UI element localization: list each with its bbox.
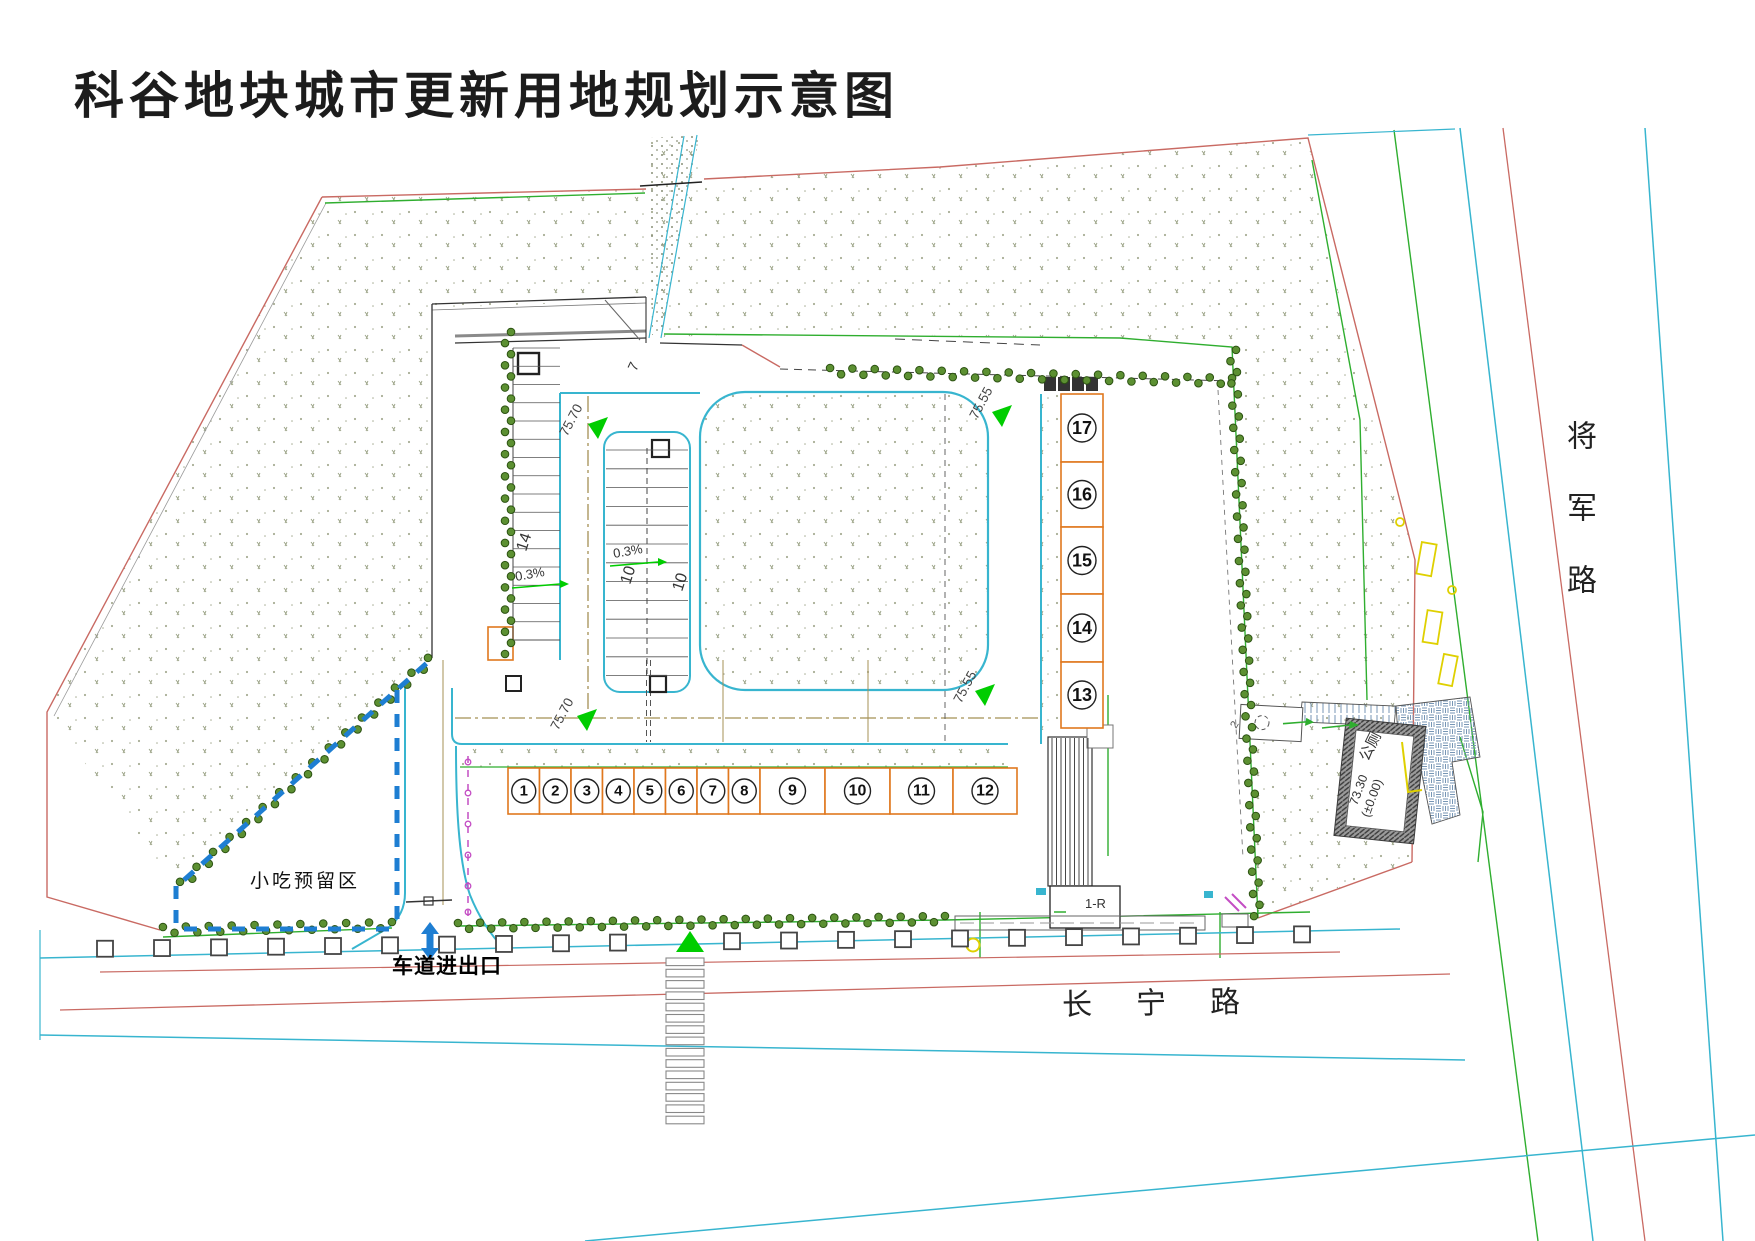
- ramp-count-label: 7: [624, 359, 642, 373]
- shop-unit-row: 9: [760, 768, 825, 814]
- svg-text:9: 9: [788, 783, 797, 800]
- driveway-gate: [406, 897, 452, 905]
- column-marker: [652, 440, 669, 457]
- svg-text:7: 7: [709, 783, 717, 800]
- elevation-triangle: [975, 684, 995, 706]
- shop-unit-column: 16: [1061, 462, 1103, 527]
- south-road-far-curb: [585, 1135, 1755, 1241]
- svg-text:13: 13: [1072, 685, 1092, 705]
- shop-unit-row: 5: [634, 768, 666, 814]
- svg-text:4: 4: [614, 783, 623, 800]
- stall-count: 10: [618, 564, 640, 586]
- plan-drawing: 12345678910111217161514131-R7公厕73.30(±0.…: [0, 0, 1755, 1241]
- svg-text:17: 17: [1072, 418, 1092, 438]
- corner-connector: [1308, 129, 1455, 135]
- page-title: 科谷地块城市更新用地规划示意图: [74, 56, 899, 128]
- column-marker: [518, 353, 539, 374]
- hedge-top-band: [826, 364, 1236, 387]
- shop-unit-row: 10: [825, 768, 890, 814]
- svg-text:16: 16: [1072, 485, 1092, 505]
- south-road-south-curb: [40, 1035, 1465, 1060]
- shop-unit-row: 4: [603, 768, 635, 814]
- parking-stalls: [513, 348, 688, 676]
- svg-text:15: 15: [1072, 551, 1092, 571]
- shop-row-sidewalk: [460, 745, 1008, 768]
- east-road-centerline: [1503, 128, 1645, 1241]
- road-label-changning: 长宁路: [1062, 976, 1285, 1024]
- stall-count: 14: [514, 531, 536, 553]
- east-road-east-curb: [1645, 128, 1723, 1241]
- elevation-triangle: [577, 709, 597, 731]
- east-road-west-curb: [1460, 128, 1593, 1241]
- street-tree-squares: [97, 926, 1310, 956]
- shop-unit-row: 12: [953, 768, 1017, 814]
- svg-text:8: 8: [740, 783, 748, 800]
- elevation-triangle: [588, 417, 608, 439]
- site-plan-canvas: 12345678910111217161514131-R7公厕73.30(±0.…: [0, 0, 1755, 1241]
- svg-text:11: 11: [913, 783, 930, 800]
- stipple-left-wedge: [47, 197, 432, 888]
- shop-unit-column: 17: [1061, 394, 1103, 462]
- svg-text:12: 12: [976, 783, 994, 800]
- shop-unit-column: 14: [1061, 594, 1103, 662]
- svg-text:14: 14: [1072, 618, 1092, 638]
- building-1r-label: 1-R: [1085, 896, 1106, 911]
- snack-area-label: 小吃预留区: [250, 866, 360, 893]
- svg-text:1: 1: [520, 783, 528, 800]
- svg-text:2: 2: [551, 783, 559, 800]
- east-road-green-edge: [1394, 130, 1538, 1241]
- shop-unit-row: 7: [697, 768, 729, 814]
- stall-count: 10: [670, 571, 692, 593]
- column-marker: [650, 676, 666, 692]
- south-road-edge-line: [100, 952, 1340, 972]
- svg-text:3: 3: [583, 783, 591, 800]
- shop-unit-column: 13: [1061, 662, 1103, 728]
- svg-text:6: 6: [677, 783, 685, 800]
- elevation-triangle: [992, 405, 1012, 427]
- svg-text:5: 5: [646, 783, 654, 800]
- crosswalk-triangle: [676, 931, 704, 952]
- road-label-jiangjun: 将军路: [1556, 420, 1600, 636]
- hedge-street-east: [454, 912, 949, 932]
- column-sidewalk-strip: [1042, 394, 1061, 730]
- shop-unit-row: 8: [729, 768, 761, 814]
- elevation-label: 75.70: [547, 696, 576, 733]
- shop-unit-row: 3: [571, 768, 603, 814]
- column-marker: [506, 676, 521, 691]
- shop-unit-column: 15: [1061, 527, 1103, 594]
- stipple-top-band: [322, 135, 1312, 345]
- shop-unit-row: 11: [890, 768, 953, 814]
- south-road-lines: [40, 929, 1755, 1241]
- shop-unit-row: 1: [508, 768, 540, 814]
- crosswalk: [666, 958, 704, 1124]
- slope-arrow: [512, 584, 560, 588]
- svg-text:10: 10: [849, 783, 867, 800]
- driveway-entrance-label: 车道进出口: [392, 950, 502, 980]
- shop-unit-row: 6: [666, 768, 698, 814]
- shop-unit-row: 2: [540, 768, 572, 814]
